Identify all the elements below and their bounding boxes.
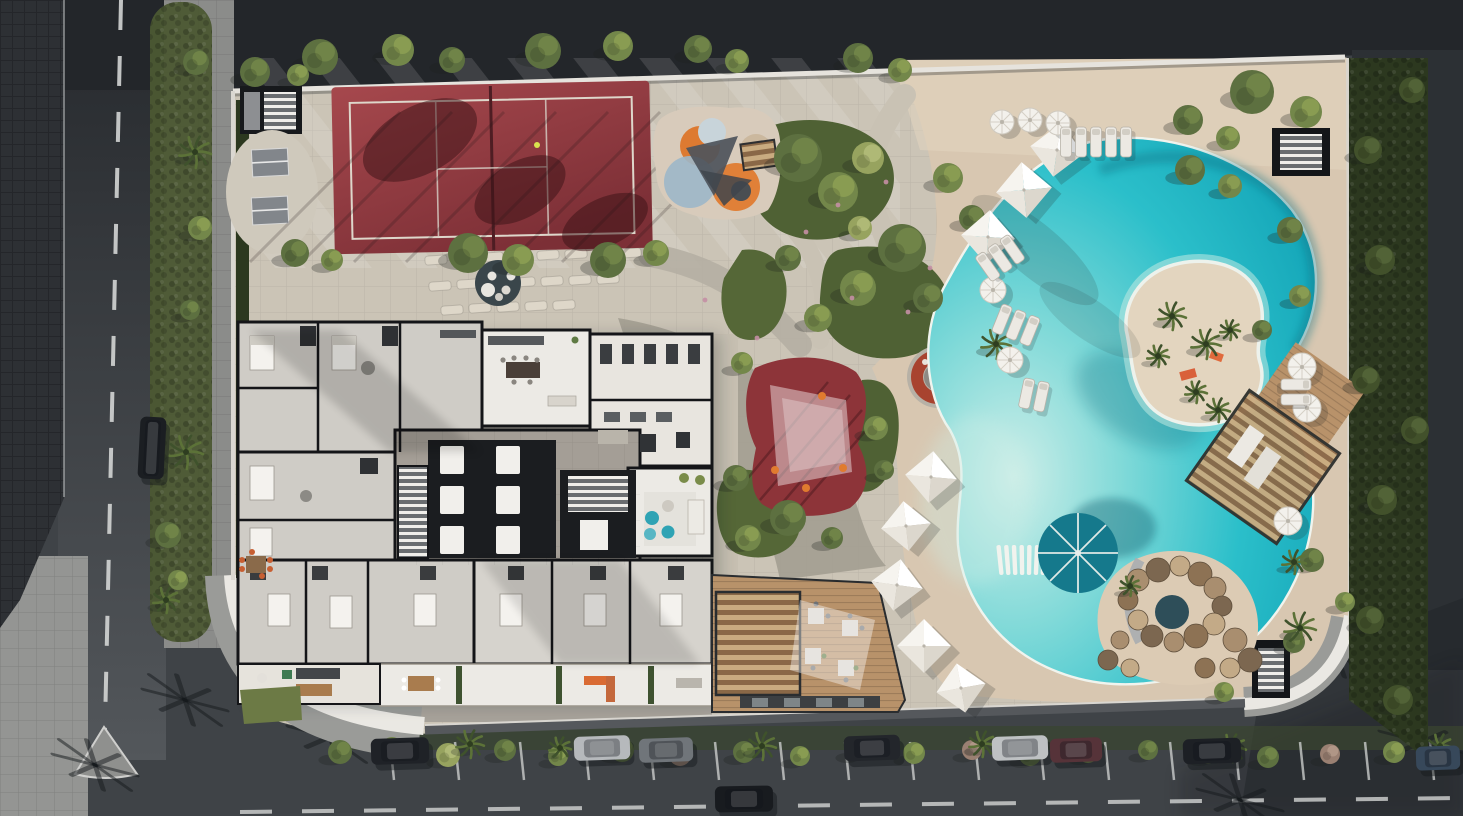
- in-pool-lounger: [1019, 545, 1024, 575]
- aerial-site-render: [0, 0, 1463, 816]
- stepping-stone: [441, 305, 464, 316]
- kids-playground: [653, 107, 781, 220]
- pillow: [922, 359, 928, 365]
- stepping-stone: [553, 300, 576, 311]
- flower: [703, 298, 708, 303]
- stairs-northwest: [240, 86, 302, 134]
- stairs-northeast: [1272, 128, 1330, 176]
- play-element: [839, 464, 847, 472]
- stepping-stone: [525, 301, 548, 312]
- boulder: [1111, 631, 1129, 649]
- boulder: [1238, 648, 1262, 672]
- bbq-deck: [712, 575, 905, 712]
- pergola-roof: [716, 592, 800, 695]
- stepping-stone: [469, 303, 492, 314]
- car: [844, 734, 905, 767]
- stepping-stone: [569, 275, 592, 286]
- stairwell: [398, 466, 428, 558]
- car: [1416, 745, 1463, 777]
- in-pool-lounger: [1027, 545, 1032, 575]
- car: [1050, 737, 1107, 769]
- sun-lounger-group: [1061, 127, 1136, 161]
- play-shade-sail-inner: [782, 398, 846, 472]
- car: [1183, 737, 1246, 770]
- car: [639, 737, 698, 769]
- boulder: [1146, 558, 1170, 582]
- car: [715, 785, 778, 816]
- play-element: [771, 466, 779, 474]
- boulder: [1184, 624, 1208, 648]
- boulder: [1098, 650, 1118, 670]
- sun-lounger-group: [1277, 379, 1311, 409]
- flower: [884, 180, 889, 185]
- boulder: [1164, 632, 1184, 652]
- boulder: [1195, 658, 1215, 678]
- grass-patch: [240, 686, 302, 724]
- amenity-site: [226, 57, 1428, 760]
- flower: [906, 310, 911, 315]
- boulder: [1223, 628, 1247, 652]
- car: [137, 416, 171, 485]
- flower: [755, 336, 760, 341]
- car: [992, 735, 1053, 767]
- boulder: [1128, 610, 1148, 630]
- scene-canvas: [0, 0, 1463, 816]
- boulder: [1121, 659, 1139, 677]
- elevator-cabin: [580, 520, 608, 550]
- car: [574, 735, 635, 767]
- car: [371, 737, 434, 771]
- stepping-stone: [537, 250, 560, 261]
- boulder: [1141, 625, 1163, 647]
- stairs: [568, 476, 628, 512]
- flower: [928, 266, 933, 271]
- play-element: [802, 484, 810, 492]
- floor-plan-building: [238, 322, 720, 706]
- boulder: [1170, 556, 1190, 576]
- flower: [804, 230, 809, 235]
- red-play-area: [746, 357, 868, 515]
- boulder: [1220, 658, 1240, 678]
- stepping-stone: [429, 281, 452, 292]
- tennis-ball: [534, 142, 540, 148]
- stepping-stone: [541, 276, 564, 287]
- flower: [836, 203, 841, 208]
- flower: [850, 296, 855, 301]
- play-element: [818, 392, 826, 400]
- spa-pool: [1155, 595, 1189, 629]
- ping-pong-area: [226, 130, 318, 254]
